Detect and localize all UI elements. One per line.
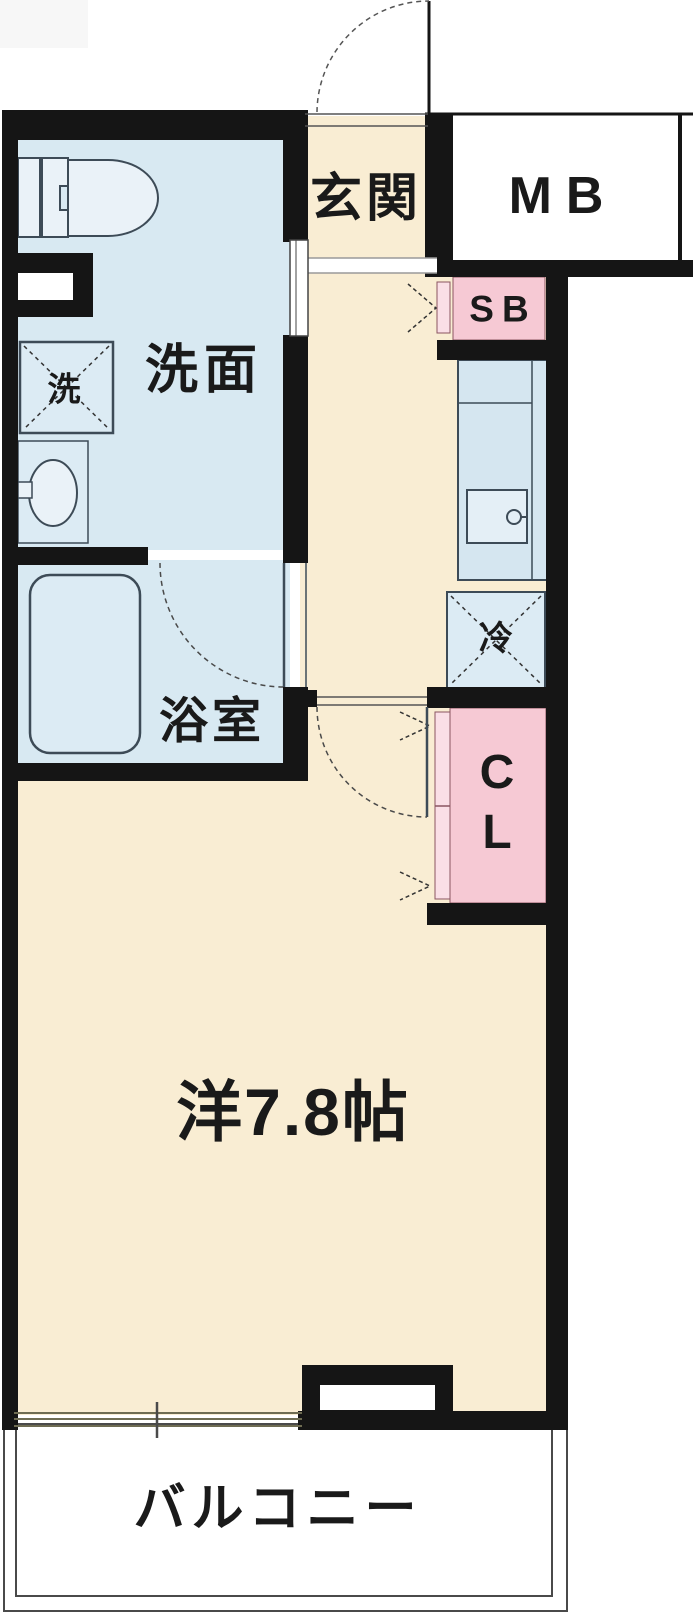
washing-machine-label: 洗 [48,373,81,406]
main-room-label: 洋7.8帖 [176,1079,410,1145]
bathtub [30,575,140,753]
washbasin [18,441,88,543]
pillar-inset [320,1385,435,1410]
toilet [18,158,158,237]
entrance-door [305,1,429,126]
closet-label: C L [480,749,515,857]
closet-label-c: C [480,749,515,797]
closet-label-l: L [482,809,511,857]
cropped-neighbor-block [0,0,88,48]
floor-plan: 玄関 MB SB 洗面 洗 浴室 冷 C L 洋7.8帖 バルコニー [0,0,700,1617]
washroom-label: 洗面 [145,344,263,397]
shoe-box-label: SB [469,291,536,328]
entrance-label: 玄関 [310,173,422,225]
bathroom-label: 浴室 [159,698,265,747]
entry-step [305,258,437,273]
washroom-sliding-door [290,240,308,336]
balcony-label: バルコニー [134,1483,423,1535]
faucet [507,510,521,524]
shoe-box-door [437,282,450,333]
meter-box-label: MB [509,170,618,222]
kitchen-counter [458,360,548,580]
floor-plan-drawing [0,0,700,1617]
wall-niche [18,253,93,317]
refrigerator-label: 冷 [479,622,513,656]
